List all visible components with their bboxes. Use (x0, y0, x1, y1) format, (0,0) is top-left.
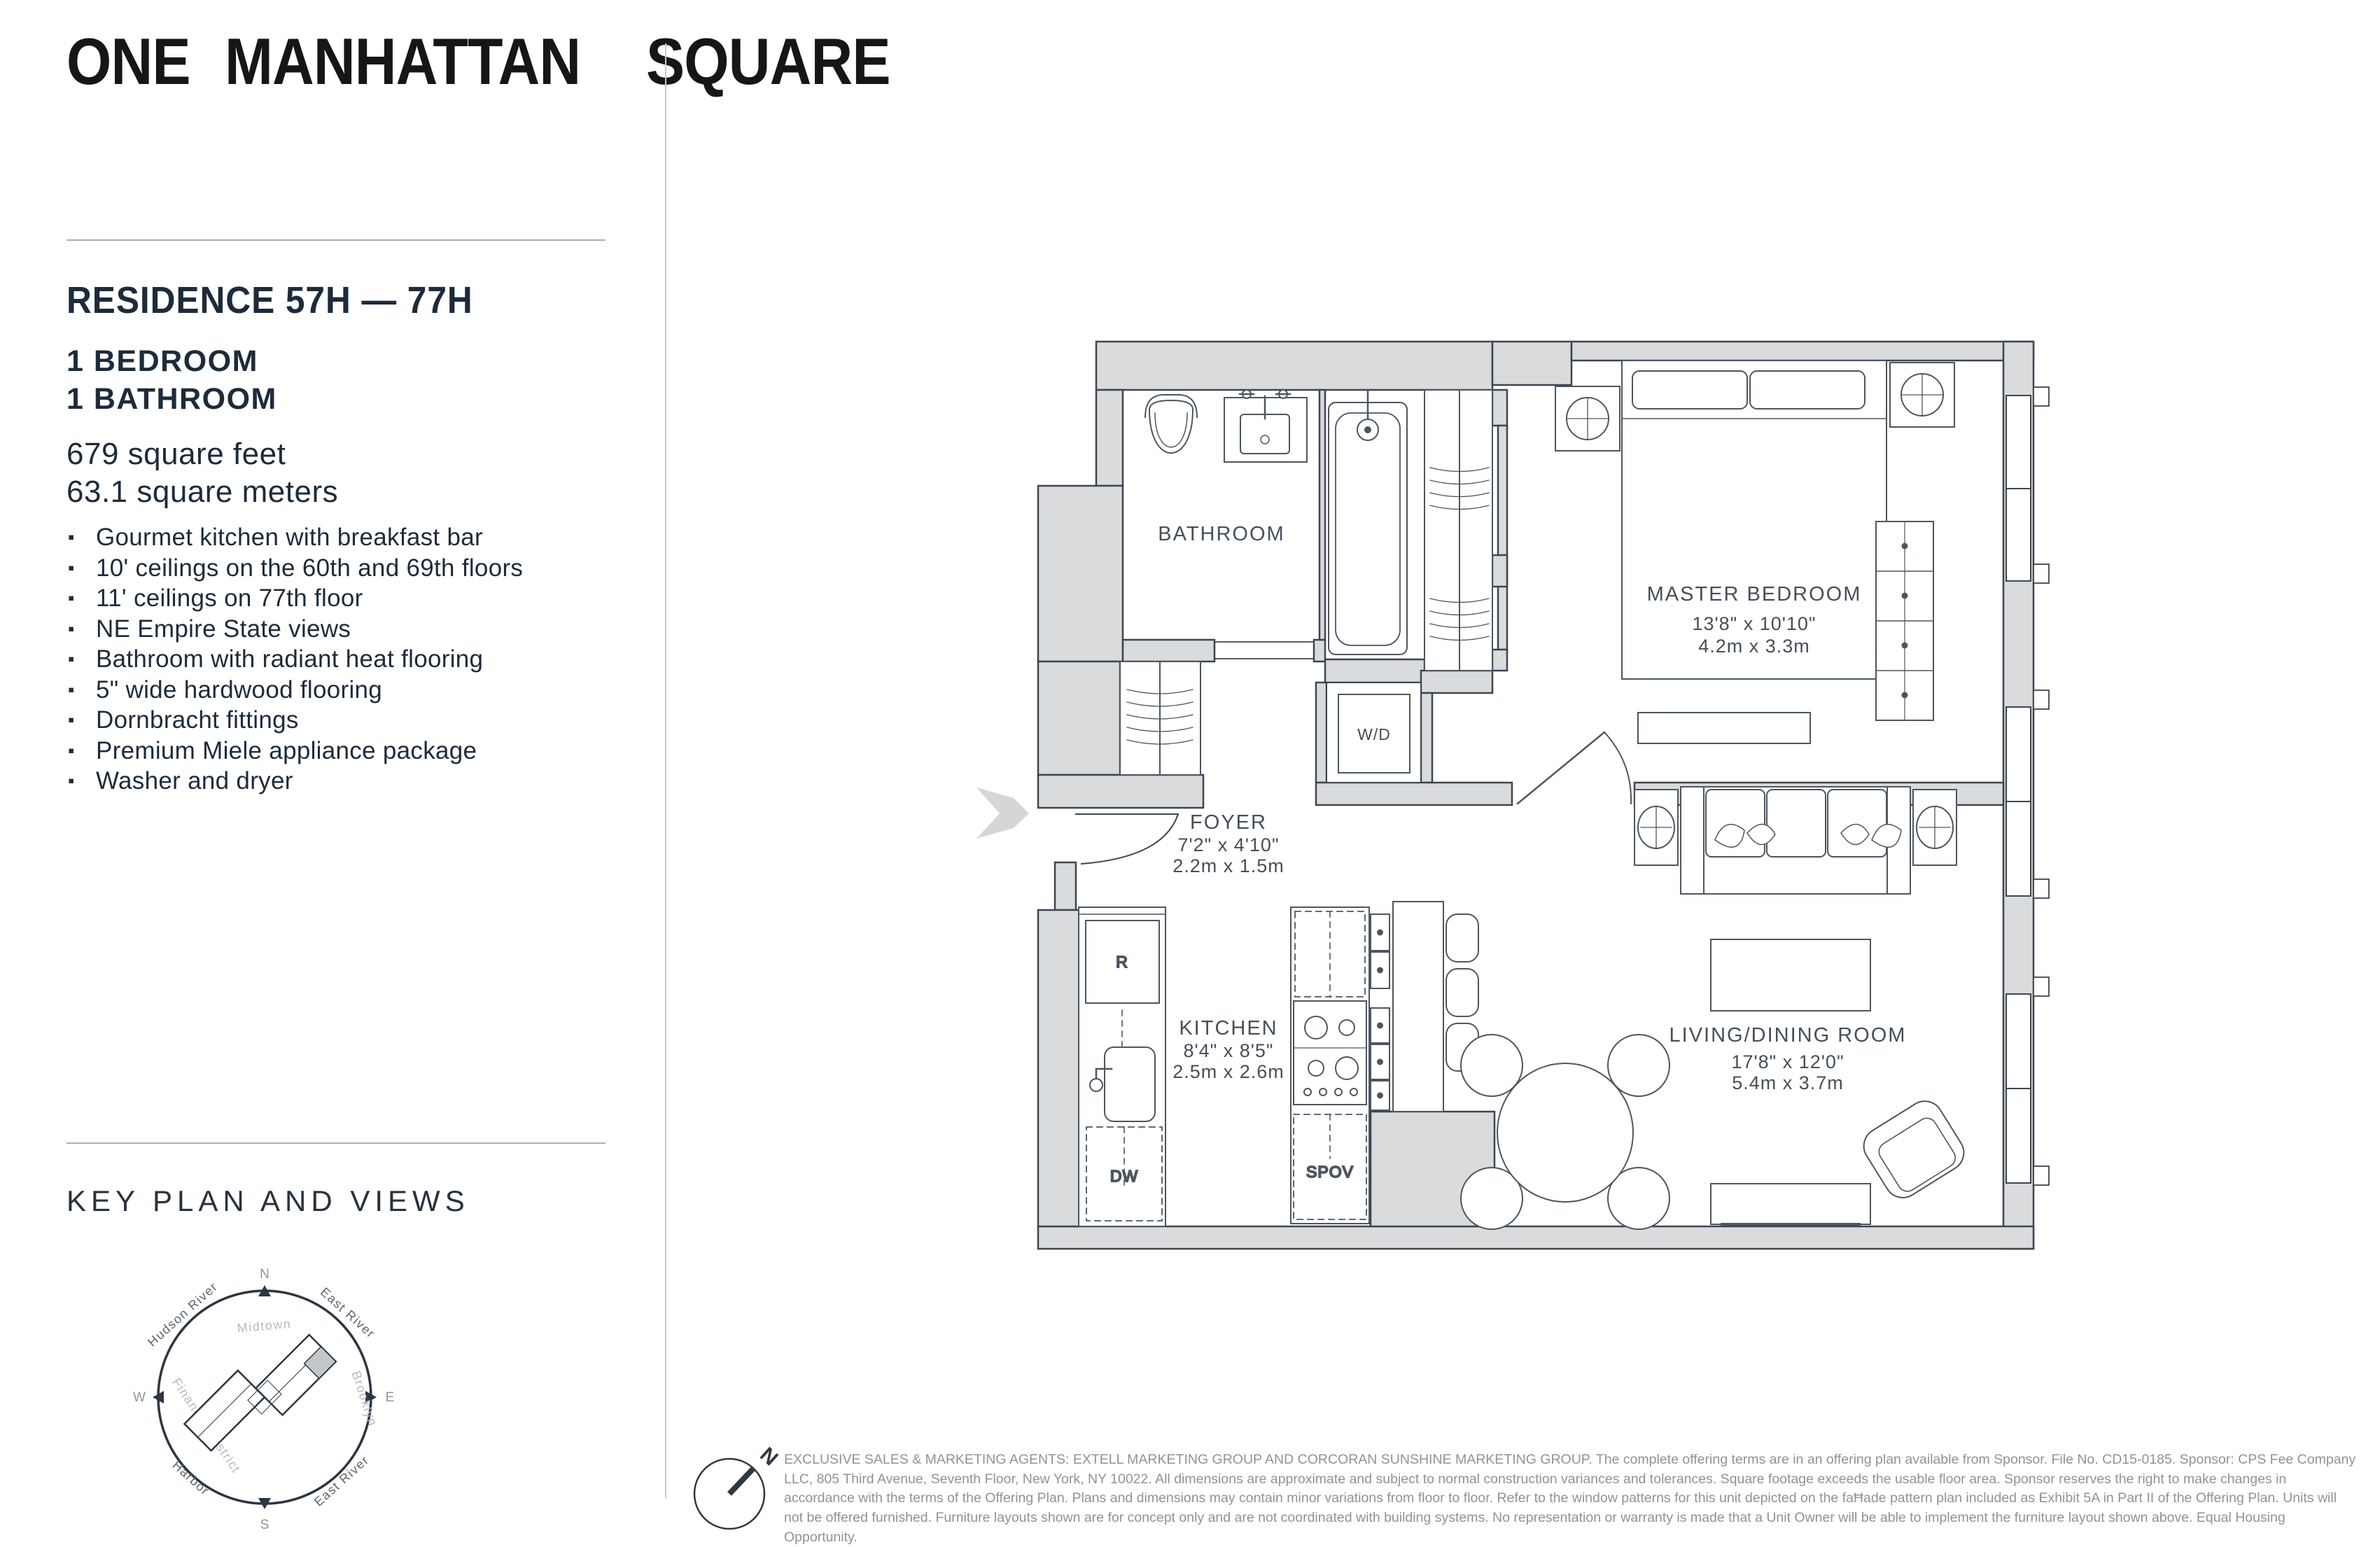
area-sqft: 679 square feet (66, 437, 286, 472)
north-arrow-label: N (755, 1446, 782, 1470)
washer-dryer: W/D (1326, 682, 1421, 783)
speed-oven-label: SPOV (1306, 1163, 1354, 1181)
coffee-table (1711, 939, 1870, 1011)
refrigerator: R (1086, 920, 1159, 1003)
media-console (1711, 1184, 1870, 1224)
refrigerator-label: R (1116, 953, 1128, 971)
feature-item: 10' ceilings on the 60th and 69th floors (66, 553, 523, 584)
legal-disclaimer: EXCLUSIVE SALES & MARKETING AGENTS: EXTE… (784, 1450, 2359, 1547)
label-east-river-se: East River (311, 1452, 372, 1508)
label-hudson-river: Hudson River (145, 1280, 220, 1350)
nightstand-left (1555, 386, 1620, 451)
area-sqm: 63.1 square meters (66, 475, 338, 510)
feature-item: Washer and dryer (66, 766, 523, 797)
feature-item: Dornbracht fittings (66, 705, 523, 736)
north-arrow: N (686, 1446, 784, 1537)
keyplan-compass: N E S W Hudson River East River East Riv… (129, 1259, 402, 1535)
feature-item: Gourmet kitchen with breakfast bar (66, 522, 523, 553)
breakfast-bar (1393, 902, 1443, 1112)
living-dining-dim-ft: 17'8" x 12'0" (1731, 1051, 1844, 1072)
feature-item: NE Empire State views (66, 614, 523, 645)
label-brooklyn: Brooklyn (349, 1369, 380, 1428)
dresser-icon (1876, 521, 1933, 720)
keyplan-title: KEY PLAN AND VIEWS (66, 1184, 470, 1218)
residence-title: RESIDENCE 57H — 77H (66, 279, 508, 322)
divider-top (66, 239, 605, 241)
feature-item: 11' ceilings on 77th floor (66, 583, 523, 614)
living-dining-label: LIVING/DINING ROOM (1669, 1024, 1907, 1046)
foyer-closet (1120, 661, 1200, 775)
feature-item: Premium Miele appliance package (66, 736, 523, 766)
brand-logo-line1: ONE (66, 31, 190, 92)
dishwasher-label: DW (1110, 1167, 1138, 1185)
washer-dryer-label: W/D (1357, 725, 1391, 743)
sofa-icon (1681, 787, 1910, 894)
feature-item: 5" wide hardwood flooring (66, 675, 523, 706)
brand-logo-line3: SQUARE (646, 31, 890, 92)
side-table-left (1634, 790, 1678, 865)
window-band (2006, 395, 2031, 1183)
entry-arrow-icon (976, 787, 1029, 839)
master-bedroom-dim-ft: 13'8" x 10'10" (1692, 613, 1816, 634)
cooktop-icon (1294, 1001, 1366, 1105)
compass-letter-e: E (386, 1390, 395, 1405)
master-bedroom-label: MASTER BEDROOM (1647, 583, 1862, 605)
drawer-stack (1371, 914, 1389, 1110)
nightstand-right (1890, 363, 1954, 427)
dining-table (1497, 1063, 1633, 1202)
brand-logo-line2: MANHATTAN (225, 31, 580, 92)
building-footprint (184, 1317, 335, 1468)
divider-bottom (66, 1142, 605, 1144)
sink-icon (1224, 390, 1307, 462)
bed-bench (1638, 713, 1810, 743)
kitchen-dim-ft: 8'4" x 8'5" (1183, 1040, 1273, 1061)
feature-list: Gourmet kitchen with breakfast bar10' ce… (66, 522, 523, 797)
floor-plan: W/D (966, 315, 2086, 1274)
bathroom-label: BATHROOM (1158, 523, 1284, 545)
compass-letter-n: N (260, 1267, 269, 1282)
north-arrow-needle (729, 1468, 754, 1494)
foyer-label: FOYER (1190, 811, 1267, 834)
label-midtown: Midtown (237, 1317, 292, 1336)
brand-logo: ONE MANHATTAN SQUARE (66, 31, 924, 92)
compass-letter-s: S (260, 1518, 269, 1532)
compass-letter-w: W (133, 1390, 146, 1405)
bathtub-icon (1329, 390, 1407, 654)
feature-item: Bathroom with radiant heat flooring (66, 644, 523, 675)
foyer-dim-ft: 7'2" x 4'10" (1177, 834, 1279, 855)
bedroom-count: 1 BEDROOM (66, 344, 258, 379)
side-table-right (1913, 790, 1956, 865)
kitchen-label: KITCHEN (1179, 1017, 1277, 1039)
hall-closet (1424, 390, 1492, 671)
label-harbor: Harbor (170, 1458, 213, 1499)
living-dining-dim-m: 5.4m x 3.7m (1732, 1072, 1844, 1093)
kitchen-dim-m: 2.5m x 2.6m (1172, 1061, 1284, 1082)
page-divider (665, 43, 666, 1498)
bathroom-count: 1 BATHROOM (66, 382, 277, 416)
master-bedroom-dim-m: 4.2m x 3.3m (1698, 636, 1810, 657)
foyer-dim-m: 2.2m x 1.5m (1172, 855, 1284, 876)
